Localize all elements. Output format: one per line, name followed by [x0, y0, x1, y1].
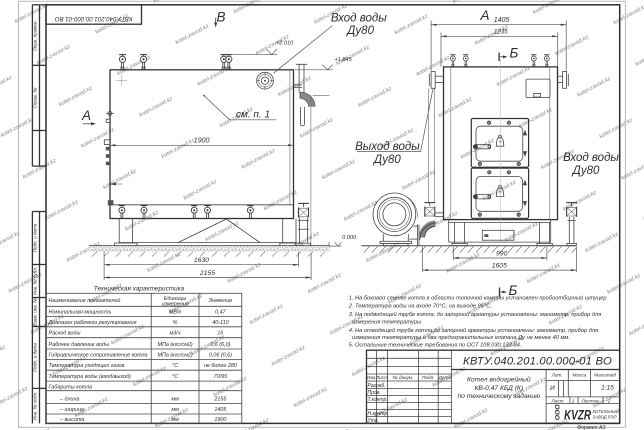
svg-text:А: А — [480, 8, 490, 23]
svg-text:1900: 1900 — [194, 138, 210, 145]
svg-text:Расход воды: Расход воды — [49, 331, 81, 337]
svg-text:0,47: 0,47 — [215, 310, 226, 316]
svg-text:мм: мм — [171, 417, 179, 423]
svg-text:Масштаб: Масштаб — [594, 372, 616, 377]
svg-text:0,06 (0,6): 0,06 (0,6) — [209, 352, 232, 358]
svg-text:измерения: измерения — [162, 302, 189, 308]
svg-text:МПа (кгс/см2): МПа (кгс/см2) — [157, 342, 192, 348]
svg-text:Н.контр.: Н.контр. — [368, 411, 389, 417]
svg-text:Ду80: Ду80 — [345, 25, 374, 37]
svg-text:Формат А3: Формат А3 — [577, 425, 605, 430]
svg-text:1630: 1630 — [194, 257, 209, 264]
svg-text:3. На подводящей трубе котла,: 3. На подводящей трубе котла, до запорно… — [349, 311, 602, 318]
svg-text:Лист: Лист — [550, 399, 563, 404]
svg-text:Справ. №: Справ. № — [33, 88, 38, 109]
svg-text:№ докум.: № докум. — [393, 375, 414, 380]
svg-text:Инв. № дубл.: Инв. № дубл. — [33, 267, 38, 295]
svg-text:Номинальная мощность: Номинальная мощность — [49, 310, 112, 316]
svg-text:Техническая характеристика: Техническая характеристика — [94, 285, 185, 292]
svg-text:1. На боковой стенке котла в: 1. На боковой стенке котла в области топ… — [349, 294, 607, 301]
svg-text:м3/ч: м3/ч — [170, 331, 181, 337]
svg-text:МВт: МВт — [169, 310, 182, 316]
svg-text:Пров.: Пров. — [368, 390, 381, 396]
svg-text:Габариты котла: Габариты котла — [49, 384, 93, 390]
svg-text:Наименование показателей: Наименование показателей — [49, 297, 121, 304]
svg-text:16: 16 — [217, 331, 223, 337]
svg-text:Разраб.: Разраб. — [368, 383, 386, 389]
svg-text:Рабочее давление воды: Рабочее давление воды — [49, 342, 109, 348]
svg-text:измерения температуры: измерения температуры — [352, 319, 422, 325]
svg-text:2: 2 — [607, 399, 611, 404]
svg-text:Температура воды (вход/выход): Температура воды (вход/выход) — [49, 374, 132, 380]
svg-text:1405: 1405 — [214, 407, 227, 413]
svg-text:Масса: Масса — [572, 372, 586, 377]
svg-text:не более 280: не более 280 — [204, 363, 237, 369]
svg-text:Вход воды: Вход воды — [331, 13, 387, 25]
svg-text:Утв.: Утв. — [368, 418, 379, 424]
svg-text:мм: мм — [171, 407, 179, 413]
svg-text:°С: °С — [172, 374, 178, 380]
svg-text:Подп. и дата: Подп. и дата — [33, 223, 38, 252]
svg-text:KVZR: KVZR — [564, 407, 592, 423]
svg-text:А: А — [81, 108, 91, 123]
svg-text:+2.010: +2.010 — [276, 41, 294, 47]
svg-text:2. Температура воды на входе: 2. Температура воды на входе 70°С, на вы… — [348, 304, 492, 310]
svg-text:Гидравлическое сопротивление к: Гидравлическое сопротивление котла — [49, 352, 148, 358]
svg-text:мм: мм — [171, 396, 179, 402]
svg-text:4. На отводящей трубе котла,д: 4. На отводящей трубе котла,до запорной … — [349, 327, 599, 334]
svg-text:КВ-0,47 КБД (К): КВ-0,47 КБД (К) — [474, 385, 523, 392]
svg-text:Инв. № подл.: Инв. № подл. — [33, 392, 38, 421]
svg-text:1235: 1235 — [494, 29, 508, 36]
svg-text:В: В — [217, 10, 226, 25]
svg-text:КВТУ.040.201.00.000-01 ВО: КВТУ.040.201.00.000-01 ВО — [55, 15, 133, 22]
svg-text:1:15: 1:15 — [601, 385, 614, 392]
svg-text:1: 1 — [572, 399, 575, 404]
svg-text:2155: 2155 — [199, 270, 215, 277]
svg-text:Выход воды: Выход воды — [355, 141, 420, 153]
svg-text:2155: 2155 — [213, 396, 227, 402]
svg-text:Подп. и дата: Подп. и дата — [33, 343, 38, 372]
svg-text:990: 990 — [496, 250, 508, 257]
svg-text:Котел водогрейный: Котел водогрейный — [467, 376, 531, 384]
svg-text:°С: °С — [172, 363, 178, 369]
svg-text:КВТУ.040.201.00.000-01 ВО: КВТУ.040.201.00.000-01 ВО — [463, 355, 612, 367]
svg-text:Вход воды: Вход воды — [563, 152, 619, 164]
svg-text:см. п. 1: см. п. 1 — [236, 110, 270, 121]
svg-text:– длина: – длина — [59, 396, 79, 402]
svg-text:Дата: Дата — [438, 375, 452, 380]
svg-text:ЗАВОД РЭП: ЗАВОД РЭП — [593, 415, 618, 420]
svg-text:1900: 1900 — [214, 417, 226, 423]
svg-text:0.000: 0.000 — [342, 235, 357, 241]
svg-text:И: И — [550, 385, 555, 392]
svg-text:Б: Б — [510, 46, 519, 61]
svg-text:– ширина: – ширина — [59, 407, 84, 413]
svg-text:1405: 1405 — [494, 17, 510, 24]
svg-text:Листов: Листов — [580, 399, 599, 404]
svg-text:КОТЕЛЬНЫЙ: КОТЕЛЬНЫЙ — [593, 409, 619, 414]
svg-text:Значение: Значение — [209, 298, 233, 304]
svg-text:Лит.: Лит. — [551, 372, 563, 377]
svg-text:40-110: 40-110 — [212, 320, 228, 326]
svg-text:измерения температуры и два пр: измерения температуры и два предохраните… — [352, 335, 570, 341]
svg-text:Лист: Лист — [375, 375, 388, 380]
svg-text:5. Остальные технические треб: 5. Остальные технические требования по О… — [349, 343, 522, 349]
svg-text:70/95: 70/95 — [214, 374, 228, 380]
svg-text:1605: 1605 — [492, 262, 507, 269]
svg-text:ООО: ООО — [555, 404, 562, 421]
svg-text:Т.контр.: Т.контр. — [368, 397, 388, 403]
svg-text:Подп.: Подп. — [422, 375, 434, 380]
svg-text:%: % — [173, 320, 178, 326]
svg-text:– высота: – высота — [59, 417, 84, 423]
svg-text:Диапазон рабочего регулировани: Диапазон рабочего регулирования — [48, 320, 137, 326]
svg-text:Температура уходящих газов: Температура уходящих газов — [49, 363, 125, 369]
svg-text:0,6 (6,0): 0,6 (6,0) — [210, 342, 230, 348]
svg-text:по техническому заданию: по техническому заданию — [457, 392, 540, 400]
svg-text:Взам. инв. №: Взам. инв. № — [33, 298, 38, 326]
svg-text:МПа (кгс/см2): МПа (кгс/см2) — [157, 352, 192, 358]
svg-text:+1.845: +1.845 — [335, 57, 353, 63]
svg-text:Ду80: Ду80 — [372, 154, 401, 166]
svg-text:Перв. примен.: Перв. примен. — [33, 20, 38, 51]
svg-text:Ду80: Ду80 — [571, 165, 600, 177]
